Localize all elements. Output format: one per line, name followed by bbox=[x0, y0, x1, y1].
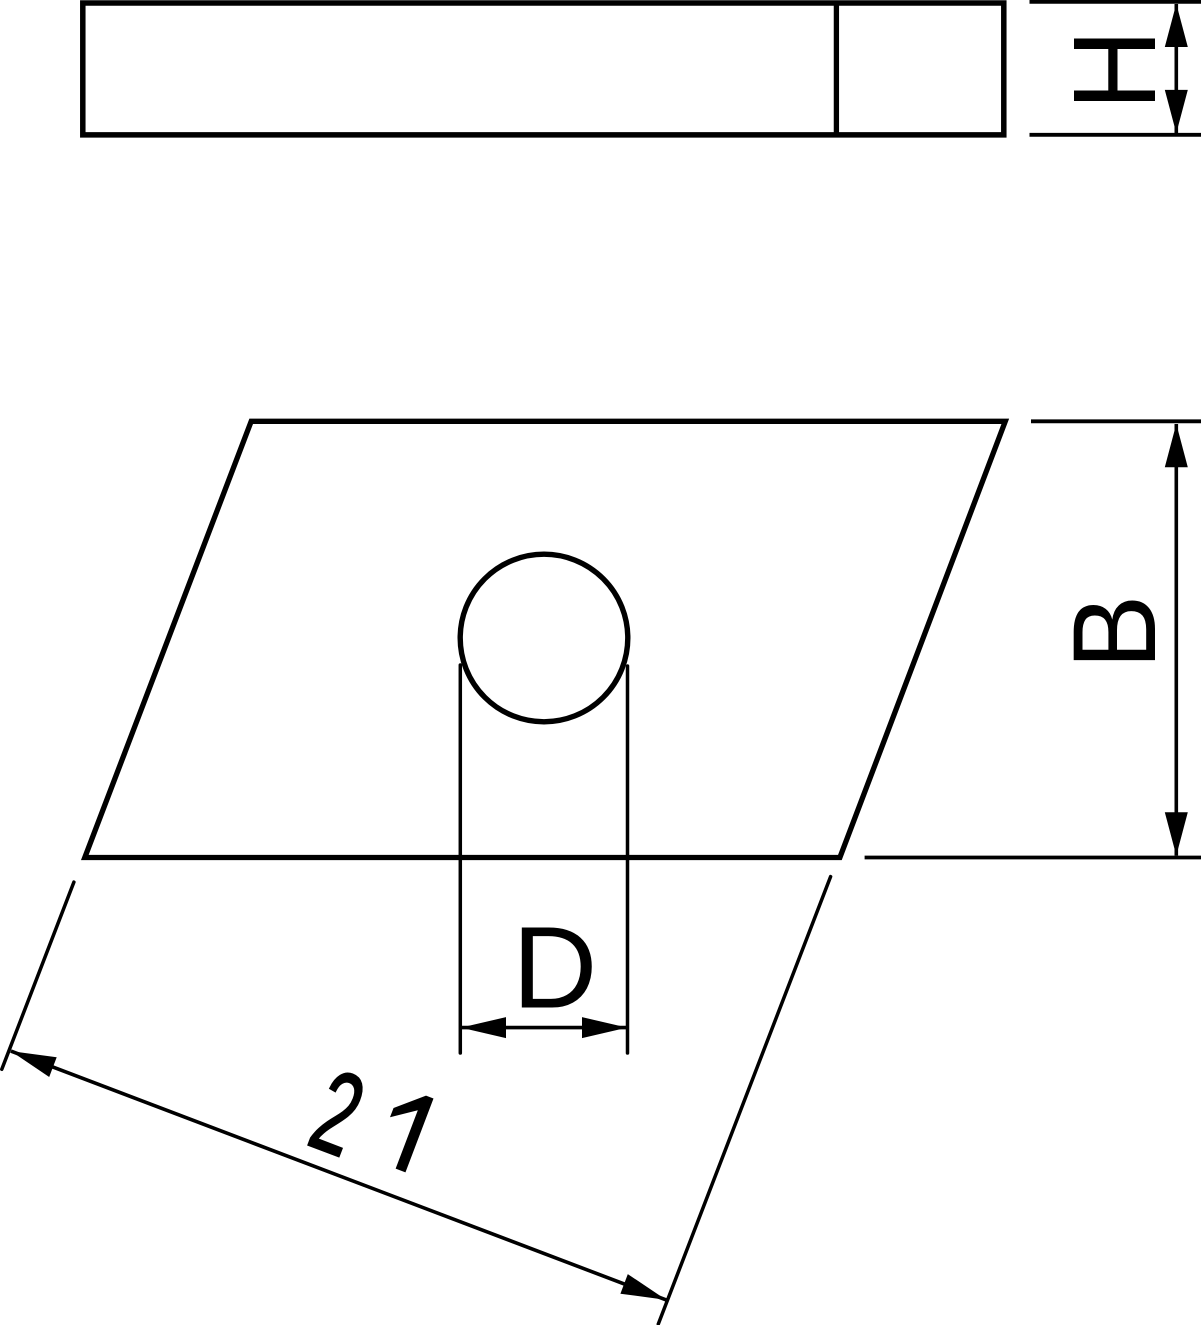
svg-text:B: B bbox=[1050, 595, 1181, 670]
svg-text:H: H bbox=[1049, 29, 1180, 110]
svg-text:D: D bbox=[512, 902, 597, 1032]
